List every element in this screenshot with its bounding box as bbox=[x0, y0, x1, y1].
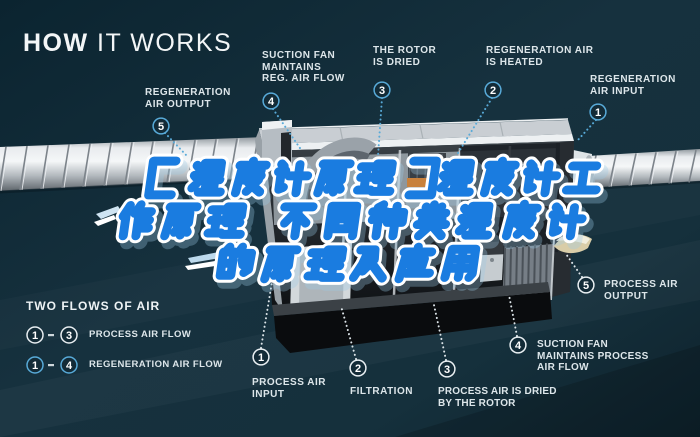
svg-text:3: 3 bbox=[66, 330, 72, 342]
svg-text:1: 1 bbox=[258, 352, 264, 364]
svg-text:2: 2 bbox=[490, 85, 496, 97]
svg-text:4: 4 bbox=[66, 360, 73, 372]
svg-text:3: 3 bbox=[379, 85, 385, 97]
svg-text:1: 1 bbox=[595, 107, 601, 119]
svg-text:2: 2 bbox=[355, 363, 361, 375]
svg-text:4: 4 bbox=[268, 96, 275, 108]
svg-text:5: 5 bbox=[158, 121, 164, 133]
svg-text:3: 3 bbox=[444, 364, 450, 376]
svg-text:1: 1 bbox=[32, 330, 38, 342]
svg-text:4: 4 bbox=[515, 340, 522, 352]
svg-text:5: 5 bbox=[583, 280, 589, 292]
svg-text:1: 1 bbox=[32, 360, 38, 372]
